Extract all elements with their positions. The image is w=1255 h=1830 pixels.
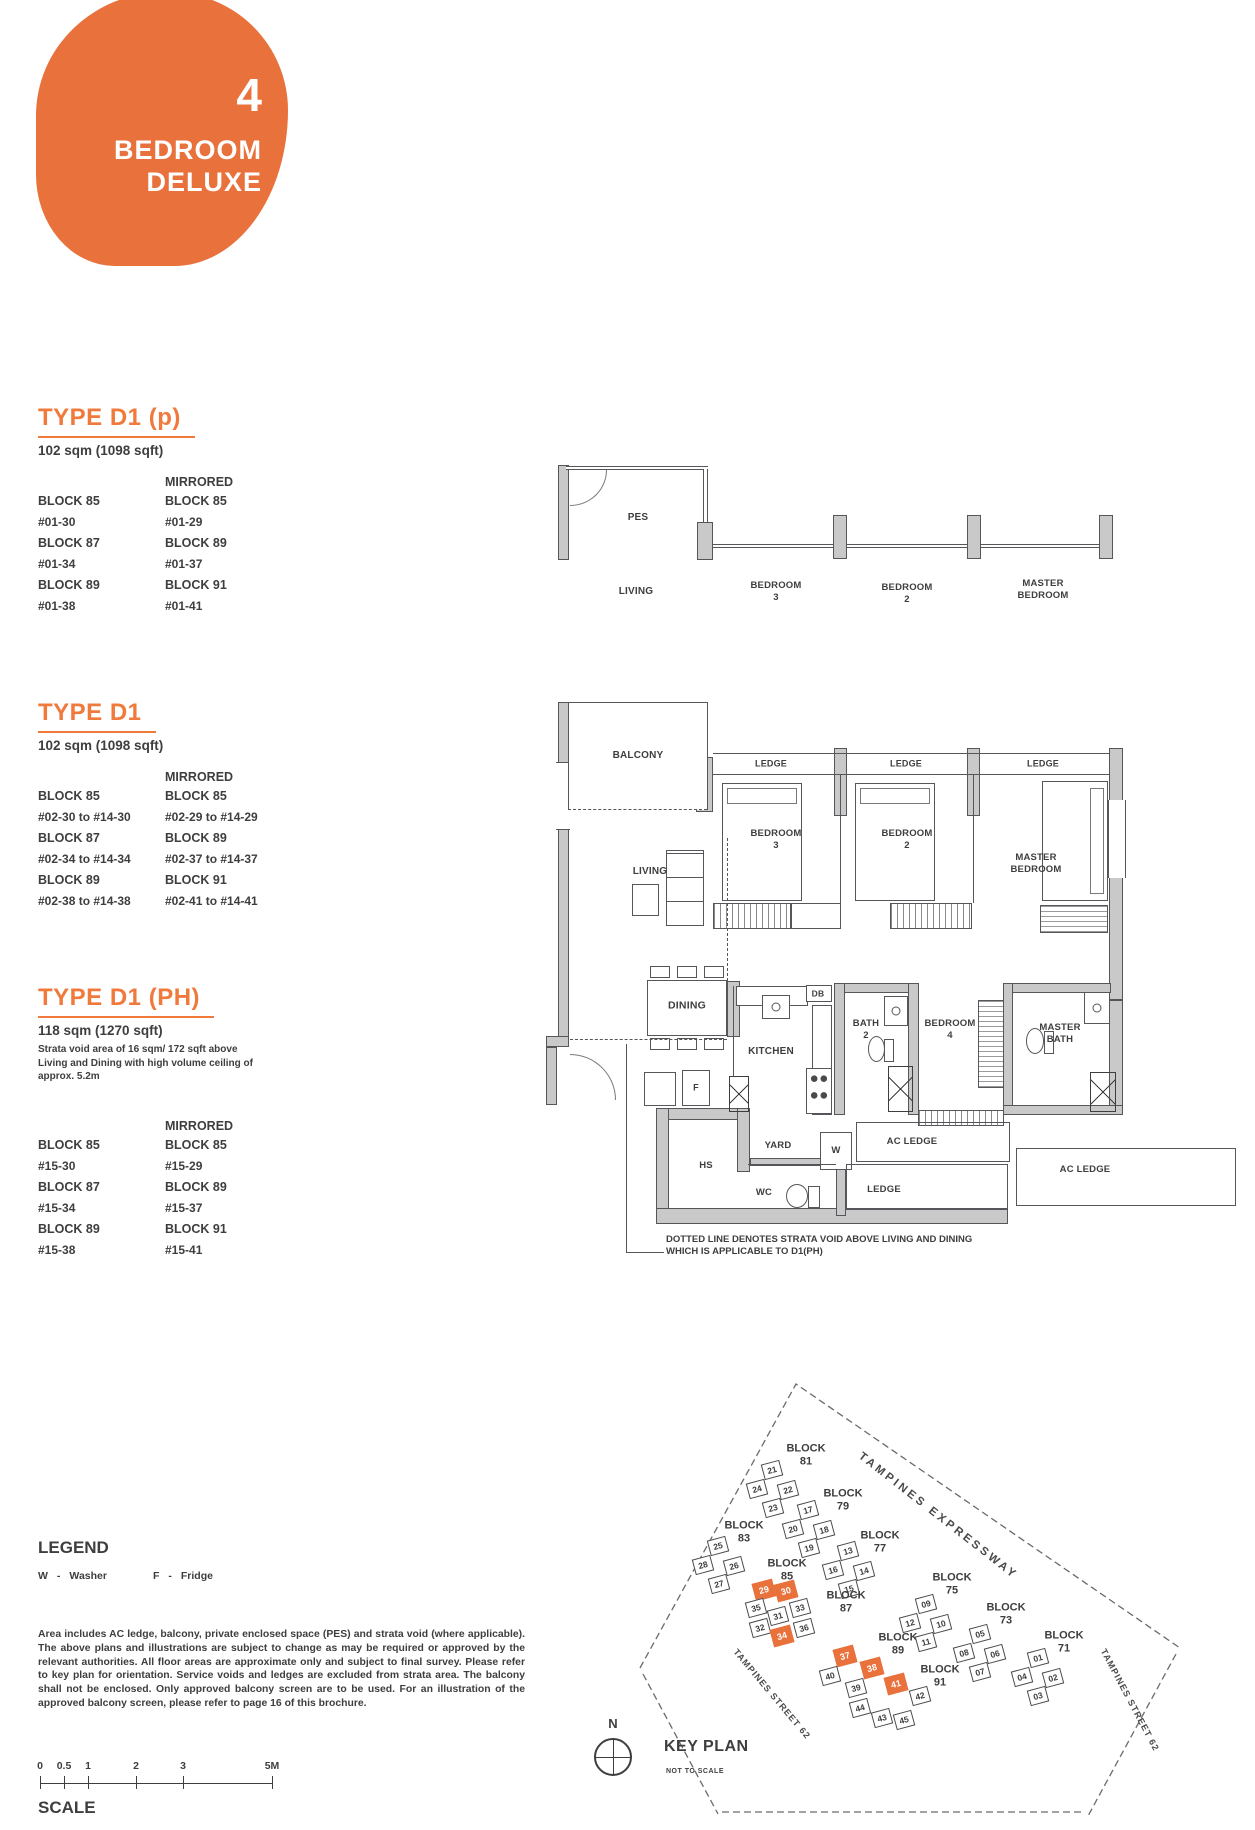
compass-icon [594,1738,632,1776]
keyplan-block-label: BLOCK 85 [767,1557,806,1582]
keyplan-block-label: BLOCK 79 [823,1487,862,1512]
keyplan-block-label: BLOCK 71 [1044,1629,1083,1654]
north-label: N [608,1716,617,1731]
keyplan-subtitle: NOT TO SCALE [666,1768,724,1775]
keyplan-block-label: BLOCK 89 [878,1631,917,1656]
keyplan-block-label: BLOCK 73 [986,1601,1025,1626]
keyplan-block-label: BLOCK 77 [860,1529,899,1554]
keyplan-block-label: BLOCK 75 [932,1571,971,1596]
keyplan-block-label: BLOCK 83 [724,1519,763,1544]
brochure-page: 4 BEDROOM DELUXE TYPE D1 (p)102 sqm (109… [0,0,1255,1830]
keyplan-boundary [0,0,1255,1830]
keyplan-block-label: BLOCK 87 [826,1589,865,1614]
keyplan-block-label: BLOCK 81 [786,1442,825,1467]
keyplan-title: KEY PLAN [664,1738,749,1756]
